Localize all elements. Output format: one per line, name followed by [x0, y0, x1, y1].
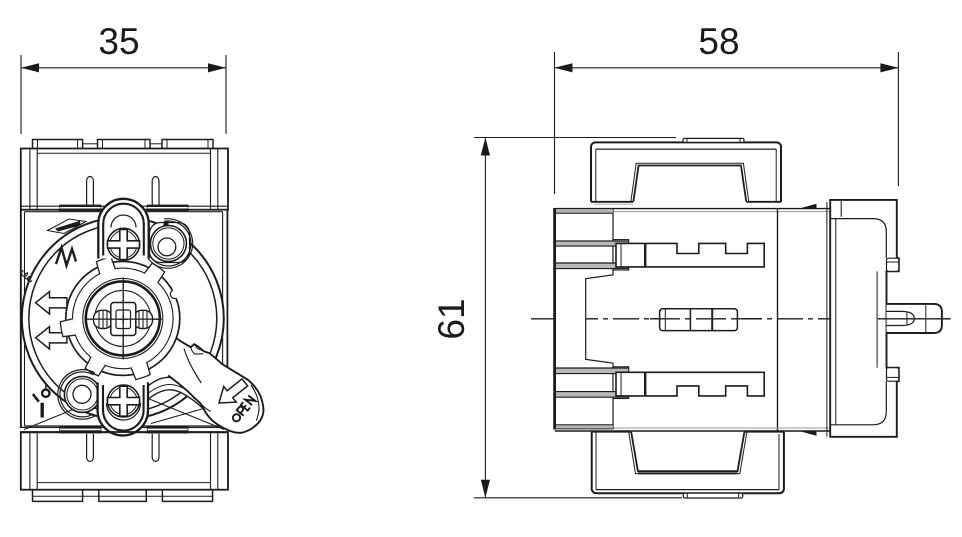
svg-text:35: 35 [98, 21, 139, 62]
svg-text:58: 58 [698, 21, 739, 62]
svg-text:61: 61 [431, 298, 472, 339]
